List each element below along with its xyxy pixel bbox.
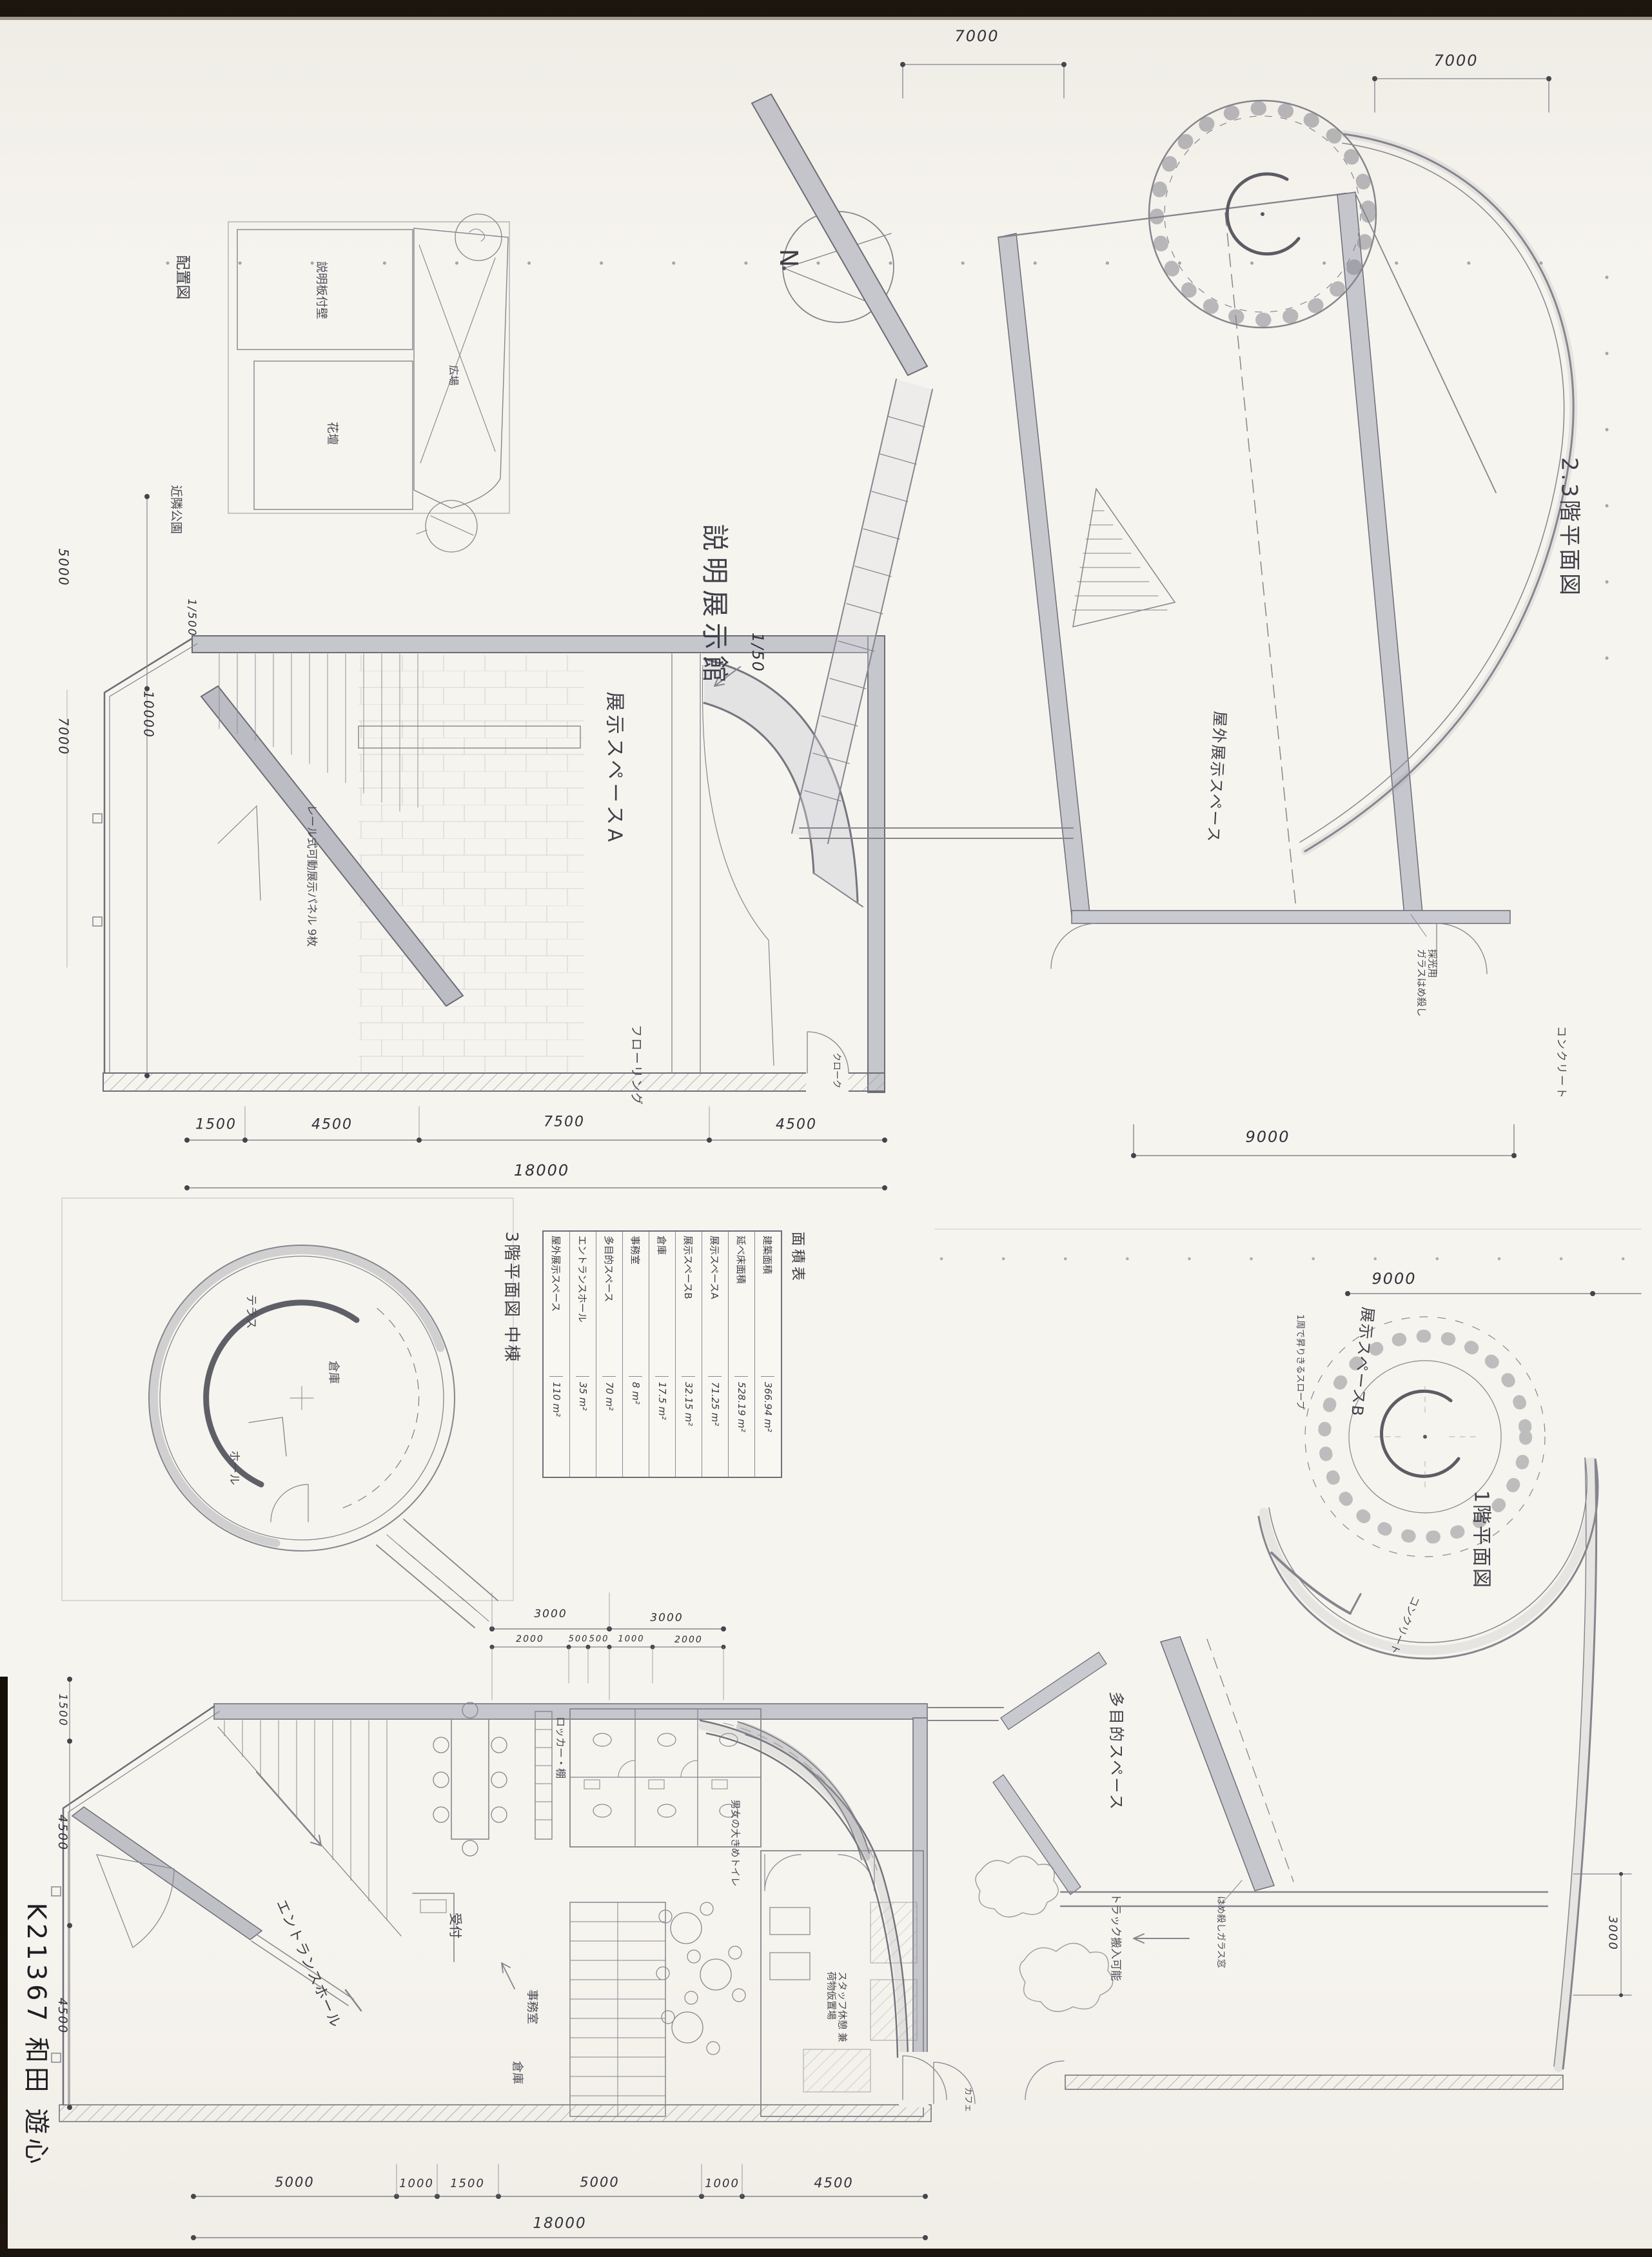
table-row: 多目的スペース70 m² [596, 1232, 622, 1477]
room-label-exhibit-a: 展示スペースA [603, 692, 625, 846]
scan-edges [0, 0, 1652, 2257]
site-plan-drawing [228, 214, 509, 552]
room-label-locker: ロッカー・棚 [555, 1717, 566, 1779]
table-row: 事務室8 m² [622, 1232, 649, 1477]
room-label-multi-purpose: 多目的スペース [1106, 1691, 1125, 1811]
lower-left-dim-lines [67, 1593, 928, 2240]
table-cell-name: 展示スペースB [682, 1232, 696, 1377]
dim-ul-left-2: 10000 [141, 691, 156, 738]
note-glass-1f: はめ殺しガラス窓 [1215, 1896, 1226, 1968]
table-cell-name: 延べ床面積 [735, 1232, 749, 1377]
table-cell-name: 事務室 [629, 1232, 643, 1377]
site-plaza-label: 広場 [447, 365, 459, 386]
dim-top-a: 7000 [954, 28, 999, 46]
table-row: 延べ床面積528.19 m² [728, 1232, 754, 1477]
student-signature: K21367 和田 遊心 [21, 1903, 51, 2168]
table-cell-value: 70 m² [604, 1377, 615, 1477]
room-label-toilet: 男女の大きめトイレ [729, 1799, 740, 1886]
note-movable-panels: レール式可動展示パネル 9枚 [304, 805, 317, 947]
dim-2f-bottom: 9000 [1245, 1128, 1290, 1147]
dim-1fl-b2: 1000 [399, 2178, 434, 2191]
dim-ul-left-1: 5000 [56, 549, 71, 587]
area-table-grid: 建築面積366.94 m² 延べ床面積528.19 m² 展示スペースA71.2… [542, 1230, 782, 1478]
upper-left-plan-drawing [93, 636, 885, 1092]
area-table: 面積表 建築面積366.94 m² 延べ床面積528.19 m² 展示スペースA… [542, 1230, 809, 1478]
table-row: 屋外展示スペース110 m² [544, 1232, 569, 1477]
room-label-cloak: クローク [831, 1052, 841, 1089]
scanned-drawing-sheet: 7000 7000 配置図 近隣公園 1/500 説明板付壁 花壇 広場 N 説… [0, 0, 1652, 2257]
table-row: エントランスホール35 m² [569, 1232, 596, 1477]
dim-ul-b3: 7500 [544, 1114, 585, 1130]
drawing-scale: 1/50 [748, 633, 766, 673]
upper-left-dim-lines [67, 62, 1551, 1190]
room-label-hall-3f: ホール [227, 1450, 241, 1485]
right-dim-lines [935, 1125, 1641, 1296]
note-glass-2f-line1: 採光用 [1426, 949, 1437, 1017]
dim-1fl-b6: 4500 [814, 2175, 853, 2191]
note-staff-line1: スタッフ休憩 兼 [836, 1971, 847, 2042]
table-cell-name: 多目的スペース [603, 1232, 616, 1377]
dim-1fl-b5: 1000 [705, 2178, 740, 2191]
table-cell-value: 110 m² [551, 1377, 562, 1477]
table-cell-value: 366.94 m² [762, 1377, 774, 1477]
plan-title-1f: 1階平面図 [1470, 1490, 1492, 1590]
note-concrete-2f: コンクリート [1554, 1026, 1567, 1099]
table-cell-name: 展示スペースA [709, 1232, 722, 1377]
table-row: 倉庫17.5 m² [649, 1232, 675, 1477]
project-title: 説明展示館 [699, 524, 730, 688]
table-cell-value: 528.19 m² [736, 1377, 747, 1477]
lower-right-plan-drawing [927, 914, 1631, 2104]
dim-ul-b2: 4500 [311, 1116, 353, 1132]
plan-title-3f: 3階平面図 中棟 [501, 1232, 520, 1364]
dim-1fl-left-3: 4500 [55, 1998, 69, 2034]
note-glass-2f: 採光用 ガラスはめ殺し [1415, 949, 1438, 1017]
table-cell-name: 倉庫 [656, 1232, 669, 1377]
site-board-label: 説明板付壁 [314, 261, 328, 319]
table-cell-name: 屋外展示スペース [550, 1232, 564, 1377]
dim-1fl-left-2: 4500 [55, 1815, 69, 1851]
table-cell-value: 17.5 m² [656, 1377, 668, 1477]
table-cell-value: 32.15 m² [683, 1377, 694, 1477]
room-label-terrace: テラス [244, 1294, 257, 1329]
table-row: 建築面積366.94 m² [754, 1232, 781, 1477]
plan-linework [0, 0, 1652, 2257]
room-label-storage-1f: 倉庫 [510, 2061, 524, 2084]
dim-1fl-b3: 1500 [450, 2178, 485, 2191]
note-truck-access: トラック搬入可能 [1108, 1893, 1121, 1981]
dim-1fl-left-1: 1500 [55, 1693, 68, 1726]
dim-1fl-b4: 5000 [580, 2174, 619, 2190]
table-row: 展示スペースA71.25 m² [702, 1232, 728, 1477]
table-cell-value: 35 m² [577, 1377, 589, 1477]
note-glass-2f-line2: ガラスはめ殺し [1415, 949, 1426, 1017]
room-label-reception: 受付 [448, 1913, 463, 1938]
dim-top-b: 7000 [1433, 52, 1478, 70]
lower-left-plan-drawing [52, 1702, 947, 2122]
site-flowerbed-label: 花壇 [325, 422, 339, 445]
room-label-office: 事務室 [525, 1989, 538, 2024]
site-scale-label: 1/500 [184, 599, 197, 637]
note-flooring: フローリング [629, 1025, 643, 1106]
dim-1fl-b1: 5000 [275, 2174, 314, 2190]
note-staff-area: スタッフ休憩 兼 荷物仮置場 [825, 1971, 848, 2042]
dim-mid-t1: 3000 [534, 1608, 567, 1621]
table-cell-name: 建築面積 [762, 1232, 775, 1377]
note-staff-line2: 荷物仮置場 [825, 1971, 836, 2042]
dim-1fr-right: 3000 [1606, 1916, 1619, 1951]
dim-mid-b1: 2000 [516, 1634, 544, 1644]
table-row: 展示スペースB32.15 m² [675, 1232, 702, 1477]
dim-ul-left-3: 7000 [56, 718, 71, 756]
dim-mid-b2: 500 [569, 1635, 589, 1645]
dim-1fr-top: 9000 [1372, 1270, 1416, 1288]
table-cell-value: 71.25 m² [709, 1377, 721, 1477]
dim-ul-total: 18000 [514, 1162, 569, 1180]
dim-mid-b3: 500 [589, 1635, 609, 1645]
room-label-storage-3f: 倉庫 [326, 1361, 340, 1384]
area-table-title: 面積表 [789, 1232, 809, 1478]
site-plan-title: 配置図 [174, 255, 191, 300]
dim-mid-b4: 1000 [618, 1635, 644, 1645]
dim-mid-b5: 2000 [674, 1635, 703, 1645]
dim-mid-t2: 3000 [650, 1612, 683, 1625]
table-cell-name: エントランスホール [576, 1232, 590, 1377]
site-park-label: 近隣公園 [168, 485, 182, 534]
room-label-cafe: カフェ [963, 2087, 972, 2112]
note-spiral-ramp: 1周で昇りきるスロープ [1295, 1314, 1305, 1410]
north-label: N [774, 249, 802, 267]
third-floor-plan-drawing [62, 1198, 513, 1628]
dim-1fl-total: 18000 [533, 2215, 586, 2232]
dim-ul-b1: 1500 [195, 1116, 237, 1132]
plan-title-2f3f: 2.3階平面図 [1556, 457, 1581, 598]
dim-ul-b4: 4500 [776, 1116, 817, 1132]
table-cell-value: 8 m² [630, 1377, 642, 1477]
